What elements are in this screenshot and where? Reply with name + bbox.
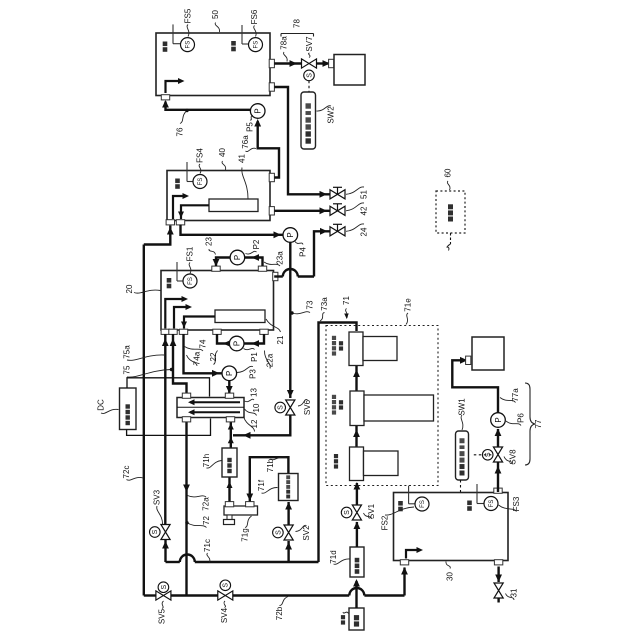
svg-text:DC: DC [97,399,106,411]
svg-text:78: 78 [293,19,302,28]
svg-text:P2: P2 [252,239,261,249]
svg-text:S: S [275,530,282,535]
svg-text:P: P [254,108,263,113]
svg-text:P4: P4 [299,247,308,257]
svg-text:72: 72 [202,516,211,525]
svg-text:72c: 72c [122,466,131,479]
svg-text:72a: 72a [202,497,211,511]
svg-text:P6: P6 [517,413,526,423]
svg-text:78a: 78a [280,36,289,50]
svg-text:73: 73 [306,300,315,309]
svg-text:21: 21 [276,335,285,344]
svg-text:P: P [225,371,234,376]
svg-text:50: 50 [211,10,220,19]
svg-text:23: 23 [205,237,214,246]
svg-text:SV4: SV4 [220,607,229,623]
svg-text:10: 10 [252,403,261,412]
svg-text:S: S [161,585,168,590]
svg-text:SV3: SV3 [153,489,162,505]
svg-text:SV8: SV8 [509,449,518,465]
svg-text:23a: 23a [276,251,285,265]
svg-text:FS2: FS2 [381,515,390,530]
svg-text:FS6: FS6 [250,9,259,24]
svg-text:SV7: SV7 [305,36,314,52]
svg-text:FS: FS [489,500,495,508]
svg-text:SV6: SV6 [303,399,312,415]
svg-text:SW1: SW1 [458,398,467,416]
svg-text:31: 31 [510,588,519,597]
svg-text:22: 22 [209,352,218,361]
svg-text:60: 60 [444,168,453,177]
svg-text:40: 40 [218,148,227,157]
svg-text:42: 42 [360,206,369,215]
svg-text:71h: 71h [202,454,211,467]
svg-text:S: S [306,73,313,78]
svg-text:P5: P5 [246,122,255,132]
svg-text:FS3: FS3 [512,496,521,511]
svg-text:77: 77 [534,419,543,428]
svg-text:P3: P3 [249,369,258,379]
svg-text:71f: 71f [257,479,266,491]
svg-text:71d: 71d [329,550,338,563]
svg-text:P: P [232,341,241,346]
svg-text:75a: 75a [123,345,132,359]
svg-text:FS5: FS5 [184,8,193,23]
svg-text:74: 74 [199,339,208,348]
svg-text:FS4: FS4 [196,148,205,163]
svg-text:S: S [344,510,351,515]
svg-text:76: 76 [176,127,185,136]
svg-text:74a: 74a [193,351,202,365]
svg-text:30: 30 [446,572,455,581]
svg-text:FS: FS [254,41,260,49]
svg-text:FS: FS [420,500,426,508]
svg-text:20: 20 [125,284,134,293]
svg-text:71g: 71g [241,528,250,541]
svg-text:SW2: SW2 [327,106,336,124]
svg-text:P: P [286,232,295,237]
svg-text:77a: 77a [511,388,520,402]
svg-text:FS: FS [198,178,204,186]
svg-text:FS: FS [188,277,194,285]
svg-text:S: S [152,529,159,534]
svg-text:75: 75 [123,365,132,374]
svg-text:S: S [278,405,285,410]
svg-text:51: 51 [360,190,369,199]
svg-text:71e: 71e [404,298,413,312]
svg-text:P: P [494,417,503,422]
svg-text:P: P [233,255,242,260]
svg-text:71b: 71b [266,458,275,472]
svg-text:71: 71 [342,296,351,305]
svg-text:71c: 71c [203,539,212,552]
svg-text:FS: FS [186,41,192,49]
svg-text:SV2: SV2 [302,525,311,541]
svg-text:S: S [223,583,230,588]
svg-text:41: 41 [238,154,247,163]
svg-text:76a: 76a [241,135,250,149]
svg-text:72b: 72b [275,606,284,620]
svg-text:SV5: SV5 [158,608,167,624]
svg-text:24: 24 [360,227,369,236]
svg-text:P1: P1 [250,352,259,362]
svg-text:FS1: FS1 [186,246,195,261]
svg-text:13: 13 [250,388,259,397]
svg-text:73a: 73a [320,297,329,311]
